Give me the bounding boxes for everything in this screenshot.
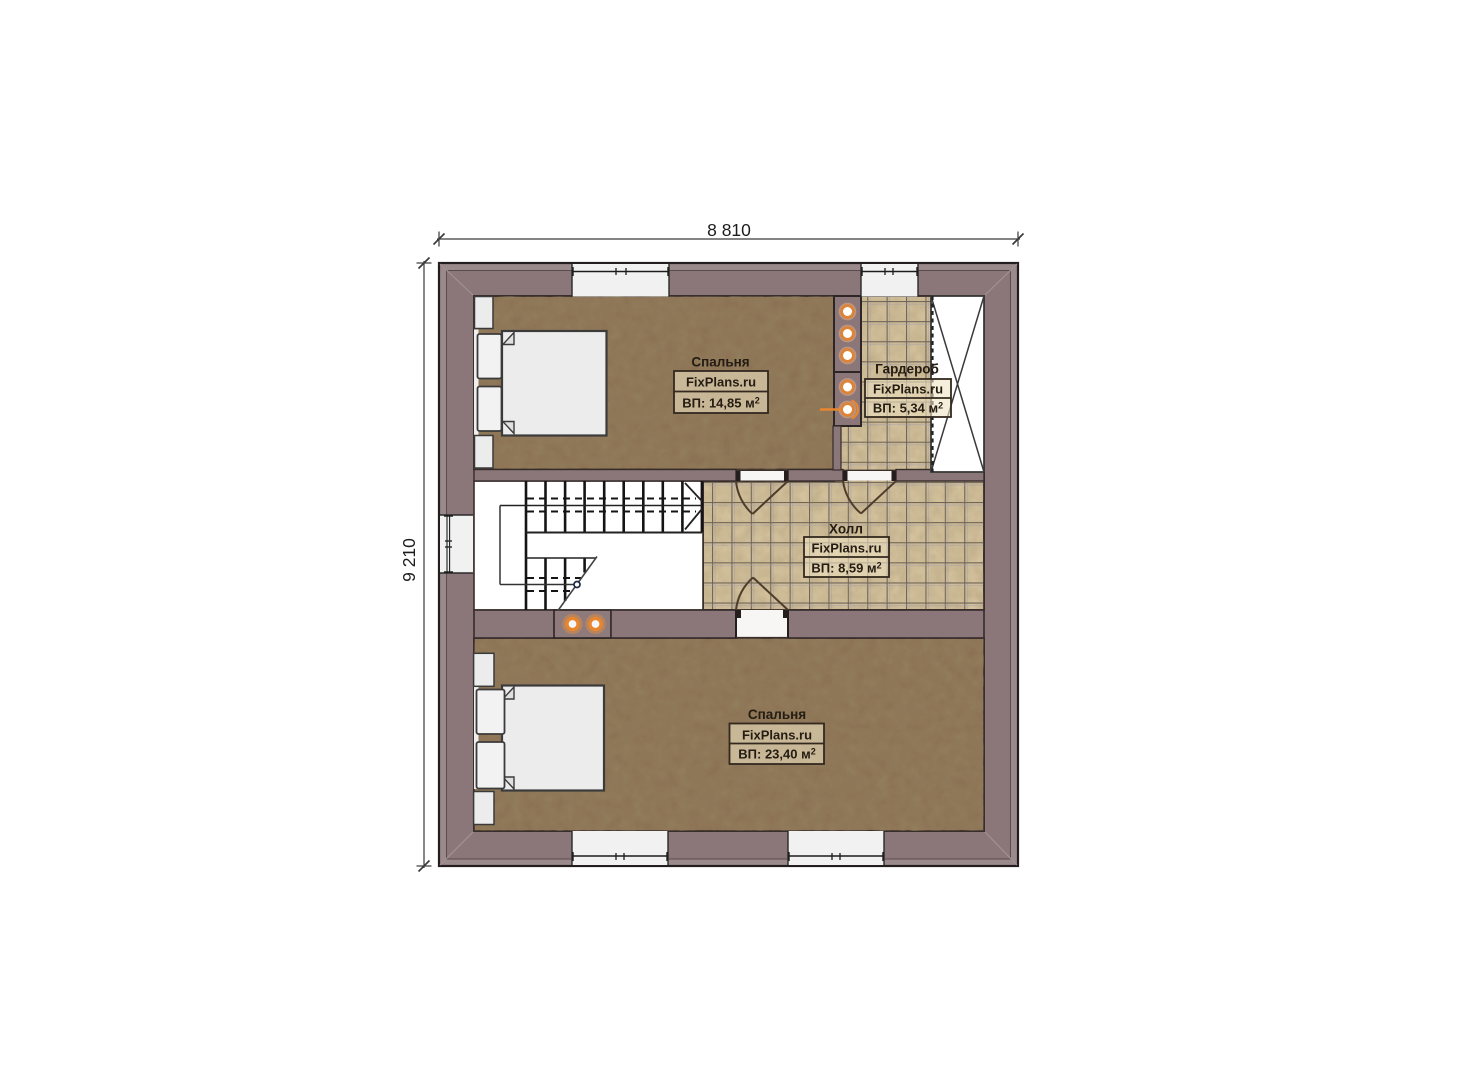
- svg-text:FixPlans.ru: FixPlans.ru: [873, 382, 943, 397]
- svg-text:FixPlans.ru: FixPlans.ru: [811, 541, 881, 556]
- svg-text:ВП: 8,59 м2: ВП: 8,59 м2: [811, 561, 881, 576]
- svg-text:ВП: 5,34 м2: ВП: 5,34 м2: [873, 401, 943, 416]
- svg-text:8 810: 8 810: [707, 220, 751, 240]
- svg-text:ВП: 23,40 м2: ВП: 23,40 м2: [738, 747, 815, 762]
- svg-text:ВП: 14,85 м2: ВП: 14,85 м2: [682, 396, 759, 411]
- svg-text:FixPlans.ru: FixPlans.ru: [742, 728, 812, 743]
- svg-text:Спальня: Спальня: [691, 355, 749, 370]
- svg-text:FixPlans.ru: FixPlans.ru: [686, 375, 756, 390]
- svg-text:9 210: 9 210: [399, 538, 419, 582]
- svg-text:Гардероб: Гардероб: [875, 362, 939, 377]
- svg-text:Холл: Холл: [829, 522, 863, 537]
- svg-text:Спальня: Спальня: [748, 707, 806, 722]
